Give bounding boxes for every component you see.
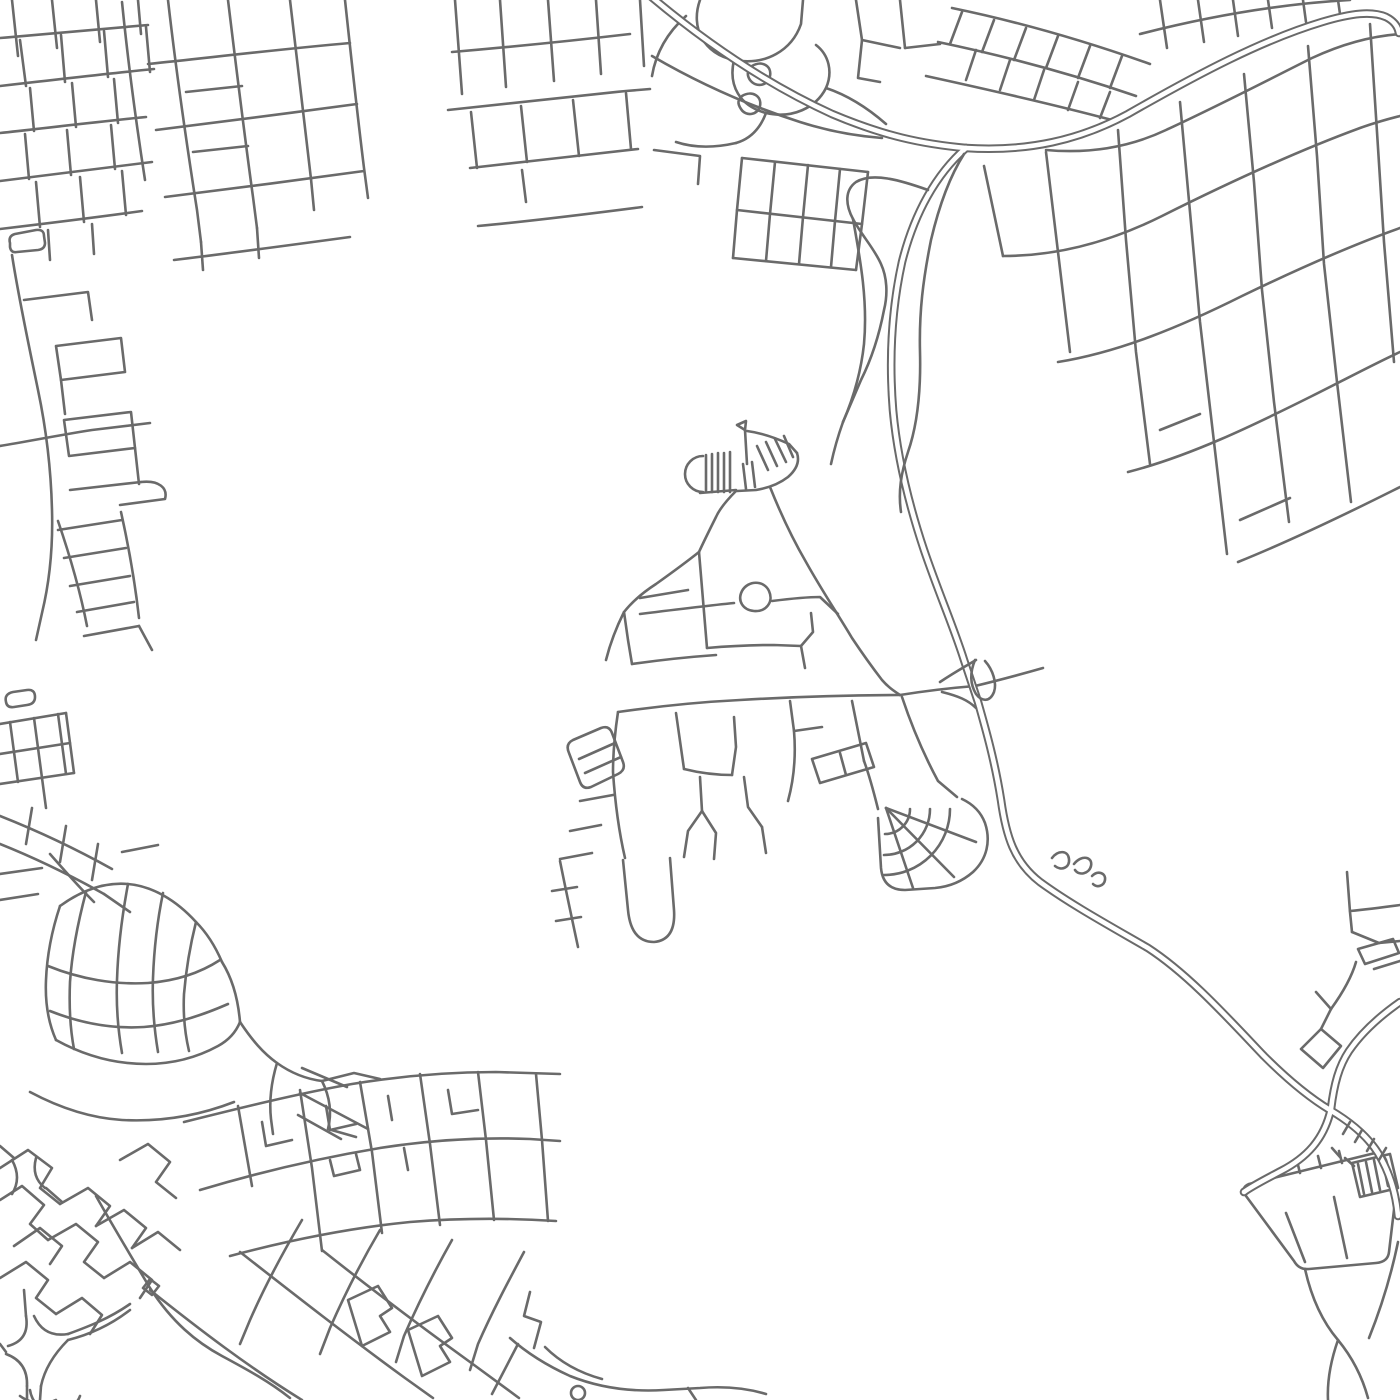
roads-highway: [648, 0, 1400, 1216]
roads-top-center-organic: [652, 0, 940, 147]
map-svg: [0, 0, 1400, 1400]
roads-left-strip: [0, 230, 166, 912]
roads-bottom-left-town: [0, 854, 766, 1400]
roads-top-right-grid: [926, 0, 1400, 562]
map-viewport[interactable]: [0, 0, 1400, 1400]
roads-top-left-grid: [0, 0, 868, 270]
roads-ramps-details: [831, 154, 1386, 1166]
